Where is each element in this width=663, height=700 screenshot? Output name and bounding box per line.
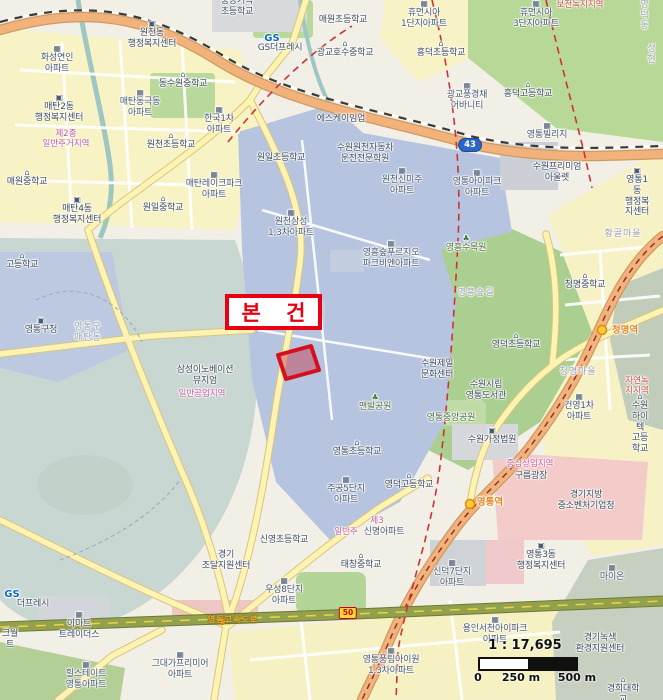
expressway-junction-dot bbox=[219, 618, 226, 625]
scale-tick: 500 m bbox=[558, 672, 596, 684]
scale-tick: 0 bbox=[474, 672, 482, 684]
scale-bar-fill bbox=[528, 659, 576, 669]
map-canvas bbox=[0, 0, 663, 700]
scale-ticks: 0250 m500 m bbox=[468, 672, 588, 686]
subject-marker-label: 본 건 bbox=[242, 297, 315, 327]
location-map: 중앙기독 초등학교보전녹지지역영 덕 동▦휴먼시아 1단지아파트▦휴먼시아 3단… bbox=[0, 0, 663, 700]
cheongmyeong-station-dot bbox=[598, 326, 607, 335]
subject-marker: 본 건 bbox=[225, 294, 322, 330]
scale-control: 1 : 17,695 0250 m500 m bbox=[468, 638, 592, 686]
yeongtong-station-dot bbox=[466, 500, 475, 509]
scale-bar bbox=[478, 657, 578, 671]
scale-tick: 250 m bbox=[502, 672, 540, 684]
scale-ratio: 1 : 17,695 bbox=[468, 638, 582, 654]
